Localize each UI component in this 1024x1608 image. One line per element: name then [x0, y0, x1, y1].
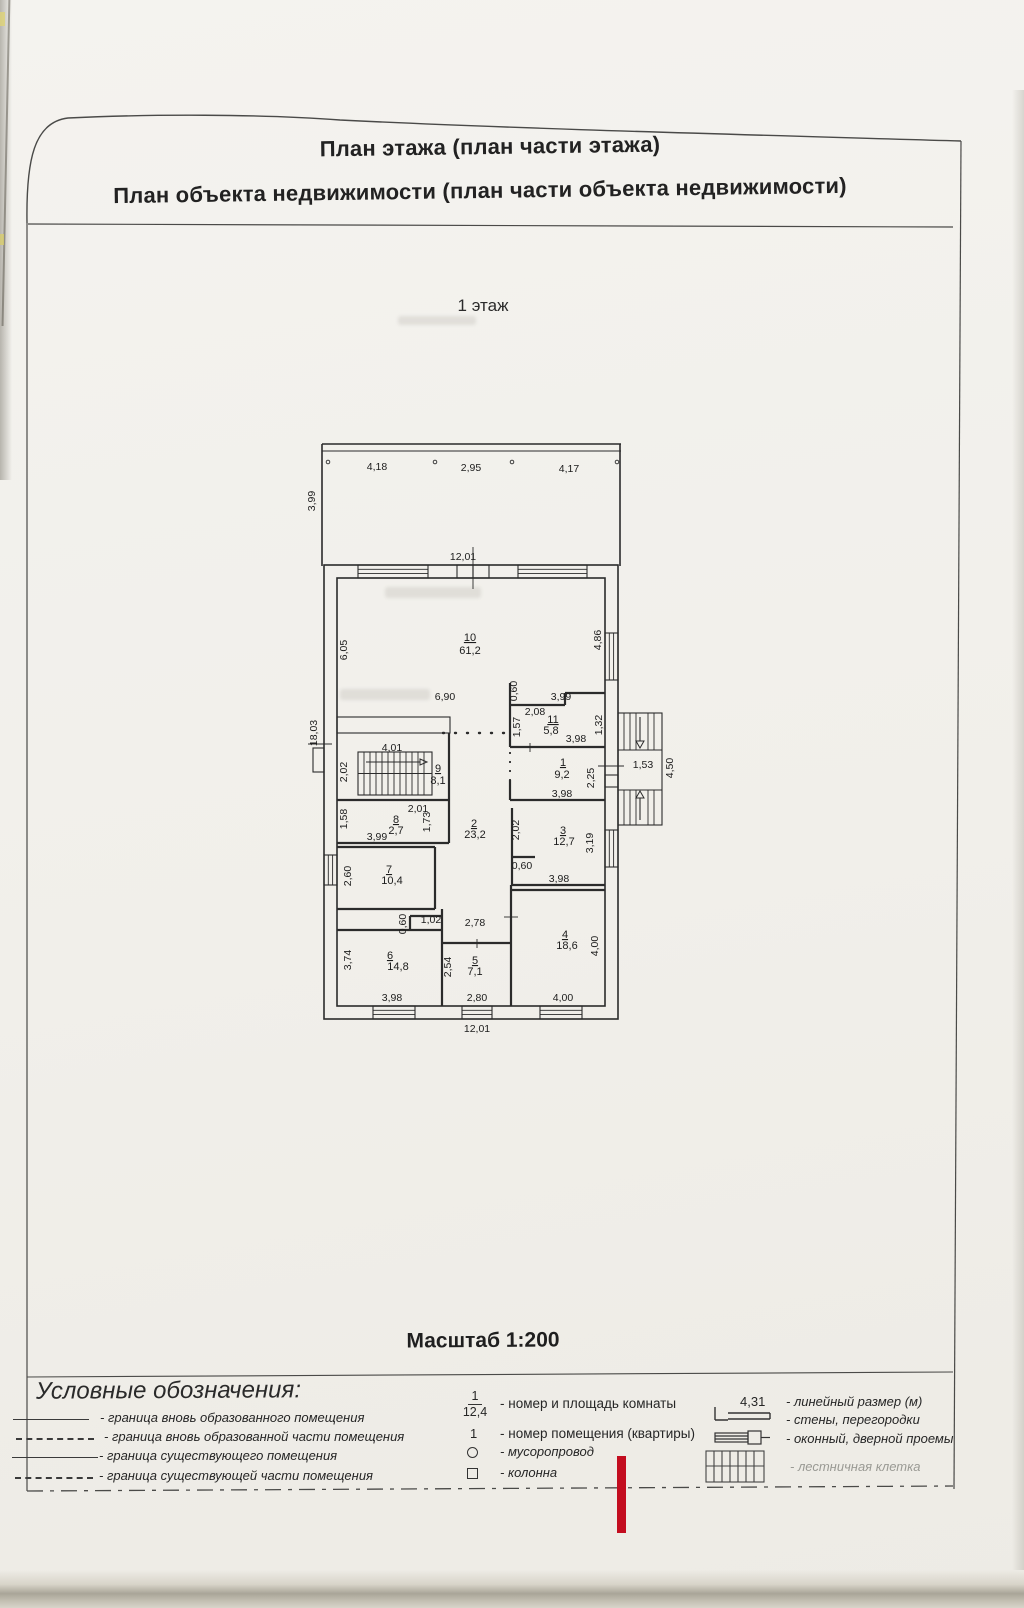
header-divider-line [28, 224, 953, 227]
floor-plan-drawing: 4,18 2,95 4,17 3,99 [290, 420, 690, 1045]
dim-label: 12,01 [450, 551, 476, 563]
dim-label: 2,08 [525, 706, 546, 718]
dim-label: 12,01 [464, 1023, 490, 1035]
dim-label: 2,95 [461, 462, 482, 474]
room-number: 1 [560, 757, 566, 769]
dim-label: 4,01 [382, 742, 403, 754]
floor-label: 1 этаж [438, 296, 528, 316]
dim-label: 4,50 [664, 758, 676, 779]
dim-label: 2,02 [510, 820, 522, 841]
room-area: 61,2 [459, 645, 480, 657]
scanned-document-page: План этажа (план части этажа) План объек… [0, 0, 1024, 1608]
room-number: 10 [464, 632, 476, 644]
room-area: 8,1 [430, 775, 445, 787]
dim-label: 4,00 [553, 992, 574, 1004]
dim-label: 6,05 [338, 640, 350, 661]
stair-up-arrow [636, 791, 644, 798]
dim-label: 2,60 [342, 866, 354, 887]
fraction-denominator: 12,4 [458, 1405, 492, 1419]
legend-line-dashed-sample [15, 1477, 93, 1479]
room-area: 7,1 [467, 966, 482, 978]
dim-label: 1,58 [338, 809, 350, 830]
room-area: 14,8 [387, 961, 408, 973]
stair-direction-arrow [420, 759, 427, 765]
legend-item-label: - мусоропровод [500, 1444, 594, 1459]
room-area: 9,2 [554, 769, 569, 781]
dim-label: 2,25 [585, 768, 597, 789]
legend-item-label: - граница существующей части помещения [99, 1468, 373, 1483]
frame-bottom-line [27, 1486, 953, 1491]
legend-item-label: - граница вновь образованной части помещ… [104, 1429, 404, 1444]
dim-label: 1,32 [593, 715, 605, 736]
dim-label: 4,18 [367, 461, 388, 473]
scale-label: Масштаб 1:200 [330, 1328, 636, 1354]
room-area: 23,2 [464, 829, 485, 841]
legend-item-label: - стены, перегородки [786, 1412, 920, 1427]
frame-right-line [954, 141, 961, 1489]
dim-label: 2,02 [338, 762, 350, 783]
dim-label: 1,73 [421, 812, 433, 833]
legend-line-dashed-sample [16, 1438, 94, 1440]
dim-label: 18,03 [308, 720, 320, 746]
dim-label: 3,98 [382, 992, 403, 1004]
dim-label: 2,80 [467, 992, 488, 1004]
dim-label: 4,00 [589, 936, 601, 957]
dim-label: 4,86 [592, 630, 604, 651]
dim-label: 0,60 [508, 681, 520, 702]
dim-label: 3,98 [549, 873, 570, 885]
dim-label: 6,90 [435, 691, 456, 703]
room-area: 18,6 [556, 940, 577, 952]
dim-label: 3,19 [584, 833, 596, 854]
legend-title: Условные обозначения: [36, 1376, 301, 1405]
dim-label: 3,99 [306, 491, 318, 512]
room-number: 9 [435, 763, 441, 775]
dim-label: 2,54 [442, 957, 454, 978]
room-number-area-symbol: 1 12,4 [458, 1390, 492, 1418]
stairwell-room-hatch [358, 752, 432, 795]
dim-label: 3,98 [566, 733, 587, 745]
dim-label: 3,99 [367, 831, 388, 843]
walls-partitions-symbol [712, 1406, 774, 1426]
dim-label: 3,74 [342, 950, 354, 971]
apartment-number-symbol: 1 [470, 1426, 477, 1441]
legend-item-label: - колонна [500, 1465, 557, 1480]
dim-label: 1,53 [633, 759, 654, 771]
garbage-chute-icon [467, 1447, 478, 1458]
dim-label: 0,60 [397, 914, 409, 935]
room-area: 5,8 [543, 725, 558, 737]
fraction-numerator: 1 [468, 1390, 483, 1405]
legend-item-label: - номер помещения (квартиры) [500, 1426, 695, 1441]
dim-label: 1,02 [421, 914, 442, 926]
dim-label: 3,98 [552, 788, 573, 800]
column-icon [467, 1468, 478, 1479]
dim-label: 4,17 [559, 463, 580, 475]
legend-item-label: - линейный размер (м) [786, 1394, 922, 1409]
dim-label: 0,60 [512, 860, 533, 872]
dim-label: 3,99 [551, 691, 572, 703]
legend-line-solid-sample [13, 1419, 89, 1420]
dim-label: 2,78 [465, 917, 486, 929]
red-marker-line [617, 1456, 626, 1533]
legend-item-label: - лестничная клетка [790, 1459, 921, 1474]
room-area: 2,7 [388, 825, 403, 837]
legend-item-label: - граница вновь образованного помещения [100, 1410, 364, 1425]
stair-down-arrow [636, 741, 644, 748]
legend-item-label: - номер и площадь комнаты [500, 1396, 676, 1411]
legend-line-solid-sample [12, 1457, 98, 1458]
legend-item-label: - оконный, дверной проемы [786, 1431, 953, 1446]
stairwell-symbol [704, 1449, 776, 1485]
room-area: 10,4 [381, 875, 402, 887]
room-area: 12,7 [553, 836, 574, 848]
window-door-openings-symbol [714, 1429, 772, 1446]
dim-label: 1,57 [511, 717, 523, 738]
legend-item-label: - граница существующего помещения [99, 1448, 337, 1463]
